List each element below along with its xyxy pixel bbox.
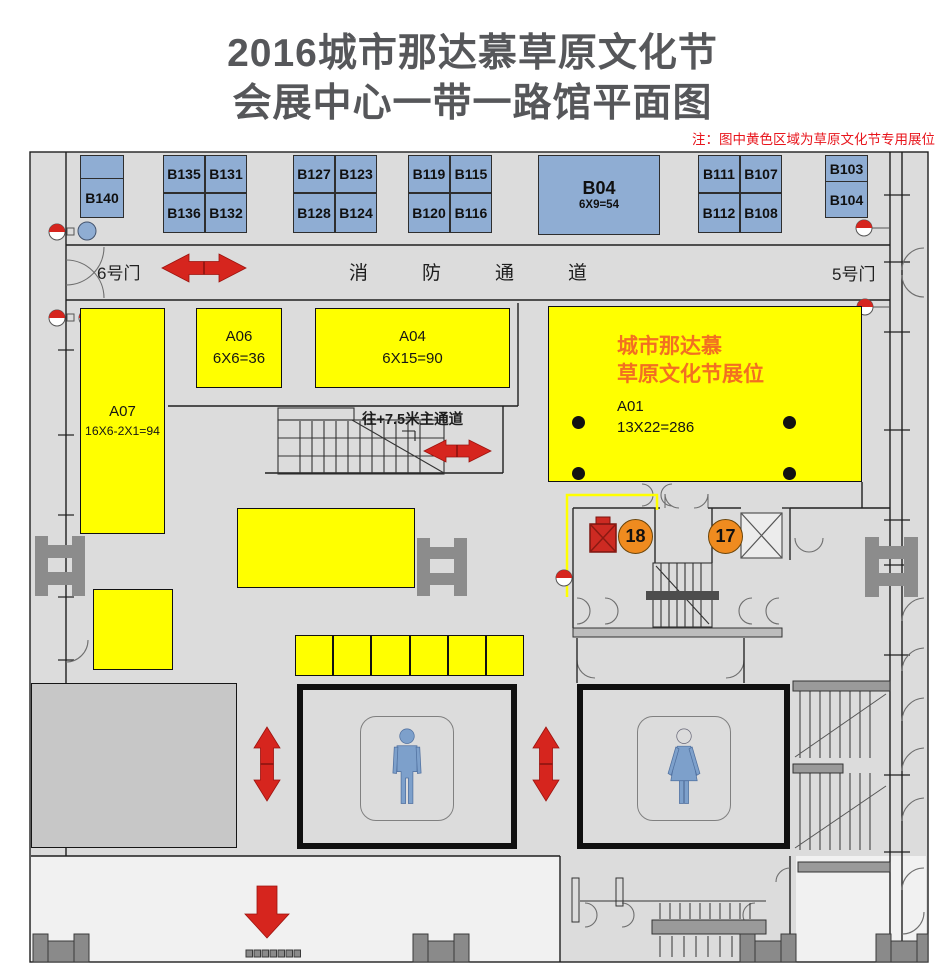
booth-B124: B124 — [335, 193, 377, 233]
legend-note: 注：图中黄色区域为草原文化节专用展位 — [445, 128, 935, 148]
booth-B04: B04 6X9=54 — [538, 155, 660, 235]
floorplan-page: 2016城市那达慕草原文化节 会展中心一带一路馆平面图 注：图中黄色区域为草原文… — [0, 0, 945, 980]
booth-unlabeled-large — [237, 508, 415, 588]
female-figure-icon — [664, 728, 704, 808]
male-figure-icon — [387, 728, 427, 808]
festival-booth-text: 城市那达慕 草原文化节展位 A01 13X22=286 — [617, 333, 764, 438]
booth-B116: B116 — [450, 193, 492, 233]
booth-size: 6X15=90 — [382, 348, 442, 370]
booth-B103: B103 — [825, 155, 868, 182]
booth-label: B04 — [582, 178, 615, 199]
booth-B132: B132 — [205, 193, 247, 233]
booth-A06: A06 6X6=36 — [196, 308, 282, 388]
bottom-stairs-icon — [572, 862, 890, 957]
core-stairs-icon — [646, 563, 719, 627]
marker-18: 18 — [618, 519, 653, 554]
restroom-male — [297, 684, 517, 849]
fire-lane-label: 消防通道 — [349, 258, 641, 285]
booth-B112: B112 — [698, 193, 740, 233]
pillar-dot — [783, 416, 796, 429]
small-booth-cell — [486, 635, 524, 676]
column-marker-icon — [78, 222, 96, 240]
booth-size: 16X6-2X1=94 — [85, 423, 160, 441]
booth-A01: 城市那达慕 草原文化节展位 A01 13X22=286 — [548, 306, 862, 482]
booth-label: A04 — [399, 326, 426, 348]
dock-blocks — [33, 934, 928, 962]
booth-B119: B119 — [408, 155, 450, 193]
page-title: 2016城市那达慕草原文化节 — [0, 22, 945, 78]
small-booth-cell — [371, 635, 409, 676]
booth-row-small — [295, 635, 524, 676]
restroom-sign-frame — [360, 716, 454, 821]
booth-size: 13X22=286 — [617, 417, 764, 438]
pillar-dot — [572, 467, 585, 480]
booth-B131: B131 — [205, 155, 247, 193]
right-stairs-icon — [793, 681, 890, 850]
page-subtitle: 会展中心一带一路馆平面图 — [0, 72, 945, 128]
booth-B136: B136 — [163, 193, 205, 233]
small-booth-cell — [448, 635, 486, 676]
booth-B120: B120 — [408, 193, 450, 233]
gate5-label: 5号门 — [832, 260, 875, 285]
booth-B107: B107 — [740, 155, 782, 193]
booth-label: A06 — [226, 326, 253, 348]
pillar-dot — [783, 467, 796, 480]
festival-title-line1: 城市那达慕 — [617, 333, 764, 361]
booth-B140: B140 — [80, 178, 124, 218]
core-wall-bar — [573, 628, 782, 637]
booth-B135: B135 — [163, 155, 205, 193]
festival-title-line2: 草原文化节展位 — [617, 361, 764, 389]
booth-B104: B104 — [825, 181, 868, 218]
escalator-icon — [35, 536, 918, 597]
elevator-icon — [741, 513, 782, 558]
marker-17: 17 — [708, 519, 743, 554]
booth-A07: A07 16X6-2X1=94 — [80, 308, 165, 534]
booth-label: A07 — [109, 401, 136, 423]
booth-B128: B128 — [293, 193, 335, 233]
main-aisle-label: 往+7.5米主通道 — [362, 408, 463, 429]
small-booth-cell — [410, 635, 448, 676]
gate6-label: 6号门 — [97, 259, 140, 284]
small-booth-cell — [295, 635, 333, 676]
booth-B127: B127 — [293, 155, 335, 193]
restroom-female — [577, 684, 790, 849]
booth-size: 6X6=36 — [213, 348, 265, 370]
booth-B140-upper — [80, 155, 124, 180]
small-booth-cell — [333, 635, 371, 676]
booth-B123: B123 — [335, 155, 377, 193]
booth-B108: B108 — [740, 193, 782, 233]
booth-label: A01 — [617, 396, 764, 417]
booth-A04: A04 6X15=90 — [315, 308, 510, 388]
pillar-dot — [572, 416, 585, 429]
down-arrow-icon — [245, 886, 289, 938]
fire-equipment-icon — [590, 517, 616, 552]
restroom-sign-frame — [637, 716, 731, 821]
service-block — [31, 683, 237, 848]
booth-B115: B115 — [450, 155, 492, 193]
booth-unlabeled-square — [93, 589, 173, 670]
booth-size: 6X9=54 — [579, 199, 619, 212]
booth-B111: B111 — [698, 155, 740, 193]
